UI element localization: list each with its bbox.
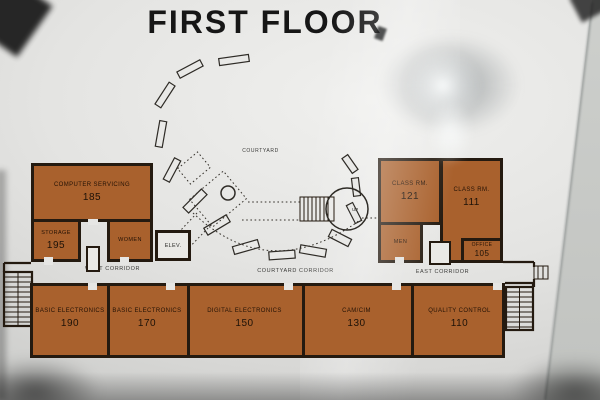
room-number: 130 (347, 319, 365, 329)
door-opening (44, 257, 53, 265)
east-stairs (503, 262, 548, 330)
room-number: 105 (475, 250, 490, 258)
up-label: UP (352, 207, 358, 212)
room-elevator: ELEV. (155, 230, 191, 261)
door-opening (88, 219, 98, 225)
room-name: OFFICE (472, 243, 493, 249)
door-opening (88, 283, 97, 290)
room-basic-electronics-170: BASIC ELECTRONICS 170 (107, 284, 187, 353)
room-number: 170 (138, 319, 156, 329)
south-room-row: BASIC ELECTRONICS 190 BASIC ELECTRONICS … (30, 283, 505, 358)
door-opening (120, 257, 129, 265)
spiral-stair-tower: UP (326, 188, 368, 230)
door-opening (395, 257, 404, 265)
door-opening (493, 283, 502, 290)
entry-vestibule-west (86, 246, 100, 272)
door-opening (166, 283, 175, 290)
room-number: 150 (235, 319, 253, 329)
door-opening (284, 283, 293, 290)
room-basic-electronics-190: BASIC ELECTRONICS 190 (33, 284, 107, 353)
room-number: 190 (61, 319, 79, 329)
door-opening (392, 283, 401, 290)
courtyard-structure (178, 152, 300, 227)
room-name: DIGITAL ELECTRONICS (207, 308, 282, 315)
room-name: BASIC ELECTRONICS (35, 308, 104, 315)
room-quality-control-110: QUALITY CONTROL 110 (411, 284, 508, 353)
room-number: 110 (451, 319, 468, 329)
room-office: OFFICE 105 (461, 238, 503, 263)
room-digital-electronics-150: DIGITAL ELECTRONICS 150 (187, 284, 302, 353)
entry-vestibule-east (429, 241, 451, 265)
courtyard-stair-hatch (300, 197, 334, 221)
room-name: CAM/CIM (342, 308, 371, 315)
room-name: BASIC ELECTRONICS (112, 308, 181, 315)
room-name: QUALITY CONTROL (428, 308, 491, 315)
floor-plan-sign-photo: UP FIRST FLOOR COMPUTER SERVICING 185 ST… (0, 0, 600, 400)
room-cam-cim-130: CAM/CIM 130 (302, 284, 411, 353)
west-stairs (4, 263, 32, 326)
